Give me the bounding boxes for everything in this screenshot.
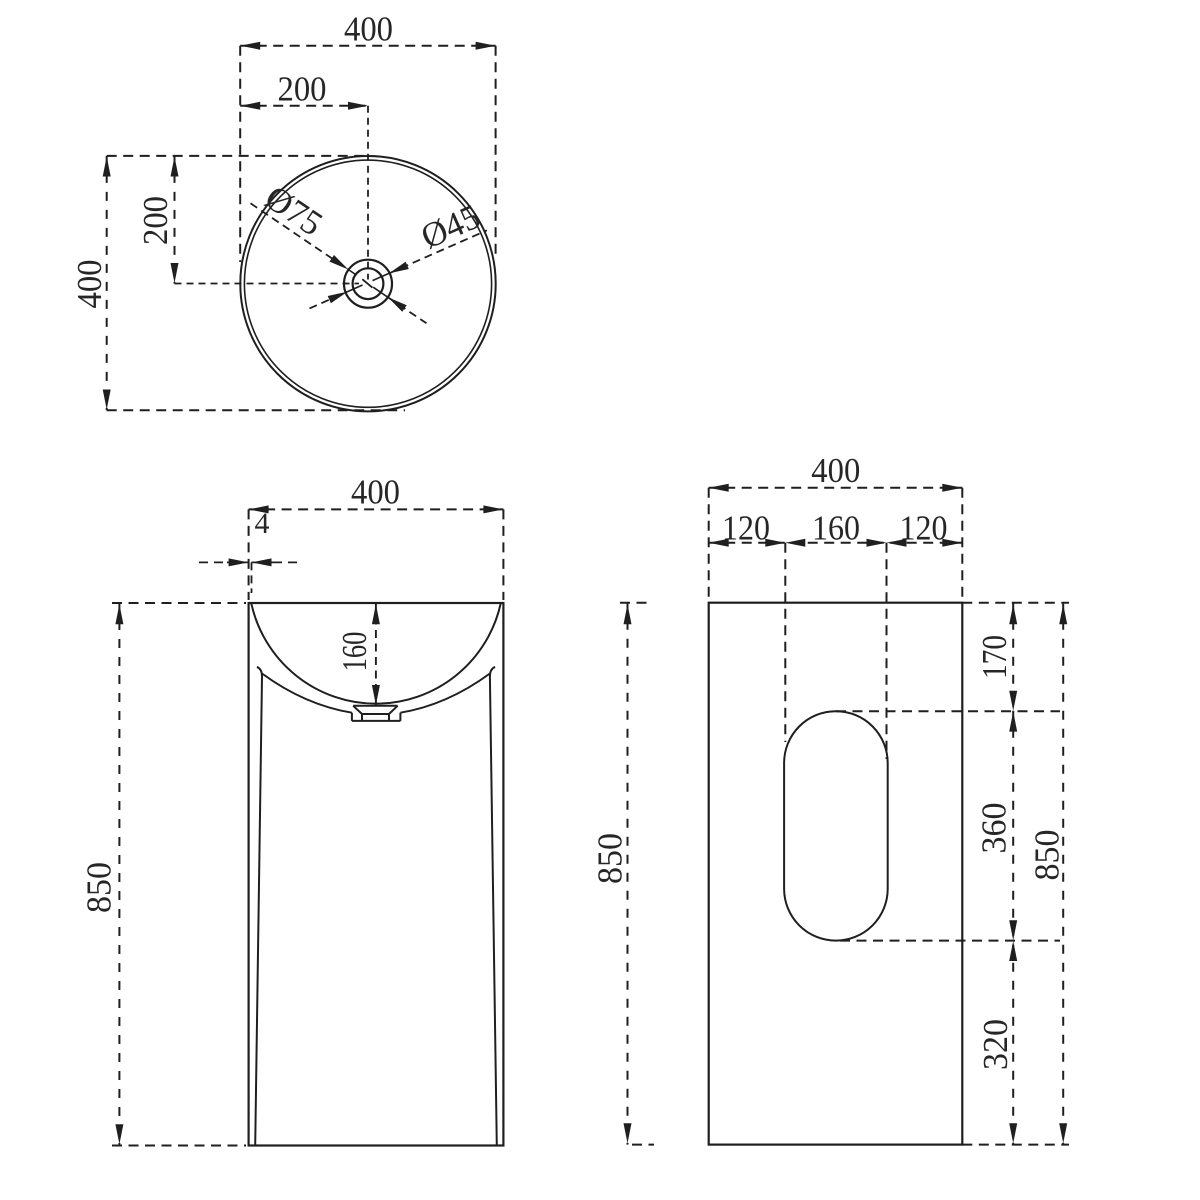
svg-text:360: 360 <box>975 803 1014 854</box>
svg-text:400: 400 <box>344 10 393 49</box>
svg-text:400: 400 <box>70 260 109 309</box>
svg-text:Ø45: Ø45 <box>415 197 486 257</box>
svg-text:850: 850 <box>591 833 630 884</box>
svg-text:850: 850 <box>1027 830 1066 881</box>
svg-text:400: 400 <box>811 451 860 490</box>
svg-text:200: 200 <box>136 196 175 245</box>
svg-text:850: 850 <box>80 862 119 913</box>
svg-text:Ø75: Ø75 <box>258 178 330 244</box>
svg-text:160: 160 <box>335 632 374 672</box>
svg-text:400: 400 <box>351 473 400 512</box>
svg-text:200: 200 <box>278 70 327 109</box>
svg-text:120: 120 <box>722 509 770 548</box>
svg-text:4: 4 <box>255 507 270 540</box>
svg-text:320: 320 <box>976 1019 1015 1070</box>
svg-text:160: 160 <box>812 509 860 548</box>
svg-text:120: 120 <box>900 509 948 548</box>
svg-text:170: 170 <box>975 635 1014 679</box>
